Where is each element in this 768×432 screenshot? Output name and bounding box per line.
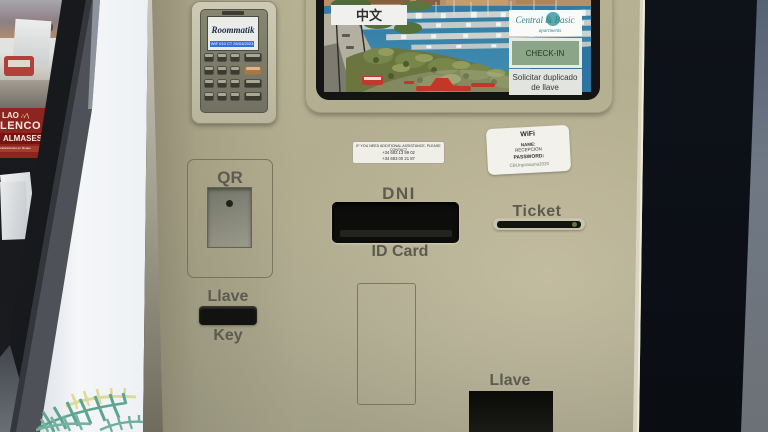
svg-text:apartments: apartments <box>539 29 562 34</box>
svg-text:中文: 中文 <box>356 8 383 23</box>
svg-text:Central & Basic: Central & Basic <box>516 15 575 25</box>
svg-text:CHECK-IN: CHECK-IN <box>526 49 565 58</box>
svg-text:Solicitar duplicado: Solicitar duplicado <box>513 73 578 82</box>
svg-text:de llave: de llave <box>531 83 559 92</box>
